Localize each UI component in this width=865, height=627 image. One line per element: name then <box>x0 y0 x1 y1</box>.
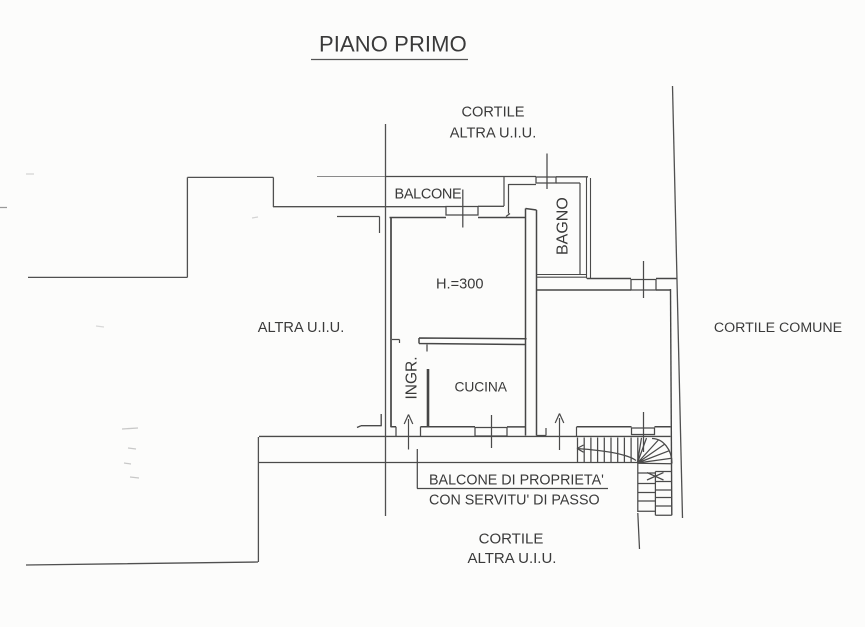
svg-text:BALCONE DI PROPRIETA': BALCONE DI PROPRIETA' <box>429 473 604 489</box>
svg-text:CORTILE: CORTILE <box>479 531 544 548</box>
svg-text:BALCONE: BALCONE <box>395 187 463 203</box>
svg-text:ALTRA U.I.U.: ALTRA U.I.U. <box>258 320 345 336</box>
svg-text:CUCINA: CUCINA <box>455 380 508 395</box>
svg-text:INGR.: INGR. <box>404 356 421 399</box>
svg-text:CORTILE: CORTILE <box>462 105 525 121</box>
svg-text:CON SERVITU' DI PASSO: CON SERVITU' DI PASSO <box>429 493 600 509</box>
svg-text:BAGNO: BAGNO <box>555 197 572 255</box>
svg-text:CORTILE COMUNE: CORTILE COMUNE <box>714 320 842 336</box>
svg-text:ALTRA U.I.U.: ALTRA U.I.U. <box>450 126 537 142</box>
svg-text:H.=300: H.=300 <box>436 277 483 293</box>
svg-text:PIANO PRIMO: PIANO PRIMO <box>319 32 467 57</box>
svg-text:ALTRA U.I.U.: ALTRA U.I.U. <box>468 550 557 567</box>
